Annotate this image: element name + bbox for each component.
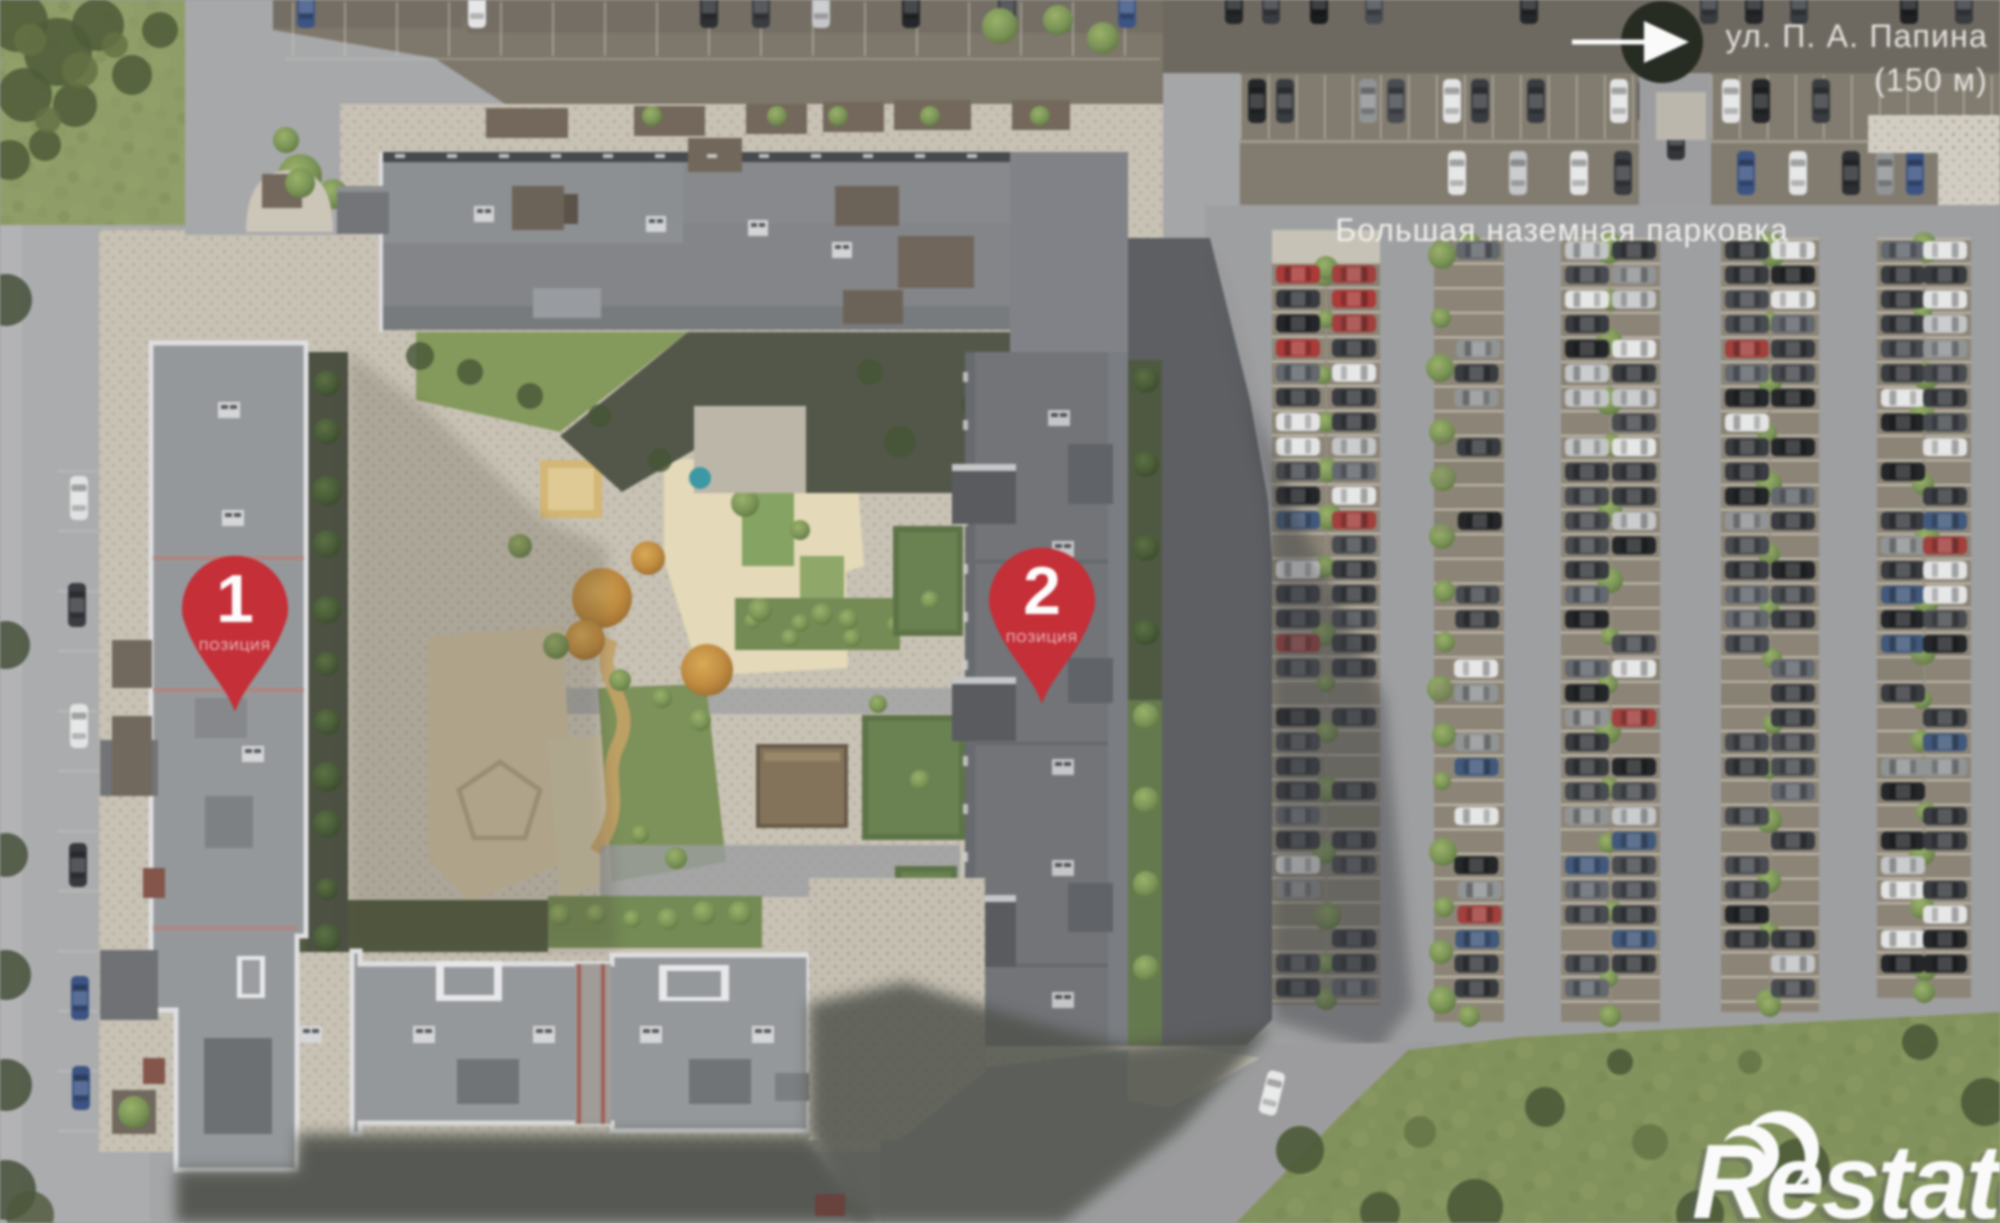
svg-text:ПОЗИЦИЯ: ПОЗИЦИЯ — [1006, 630, 1078, 645]
svg-text:2: 2 — [1023, 553, 1061, 629]
svg-text:(150 м): (150 м) — [1874, 62, 1988, 98]
svg-text:1: 1 — [216, 561, 254, 637]
svg-text:Большая наземная парковка: Большая наземная парковка — [1335, 212, 1789, 248]
svg-text:ул. П. А. Папина: ул. П. А. Папина — [1726, 18, 1988, 54]
svg-text:ПОЗИЦИЯ: ПОЗИЦИЯ — [199, 638, 271, 653]
